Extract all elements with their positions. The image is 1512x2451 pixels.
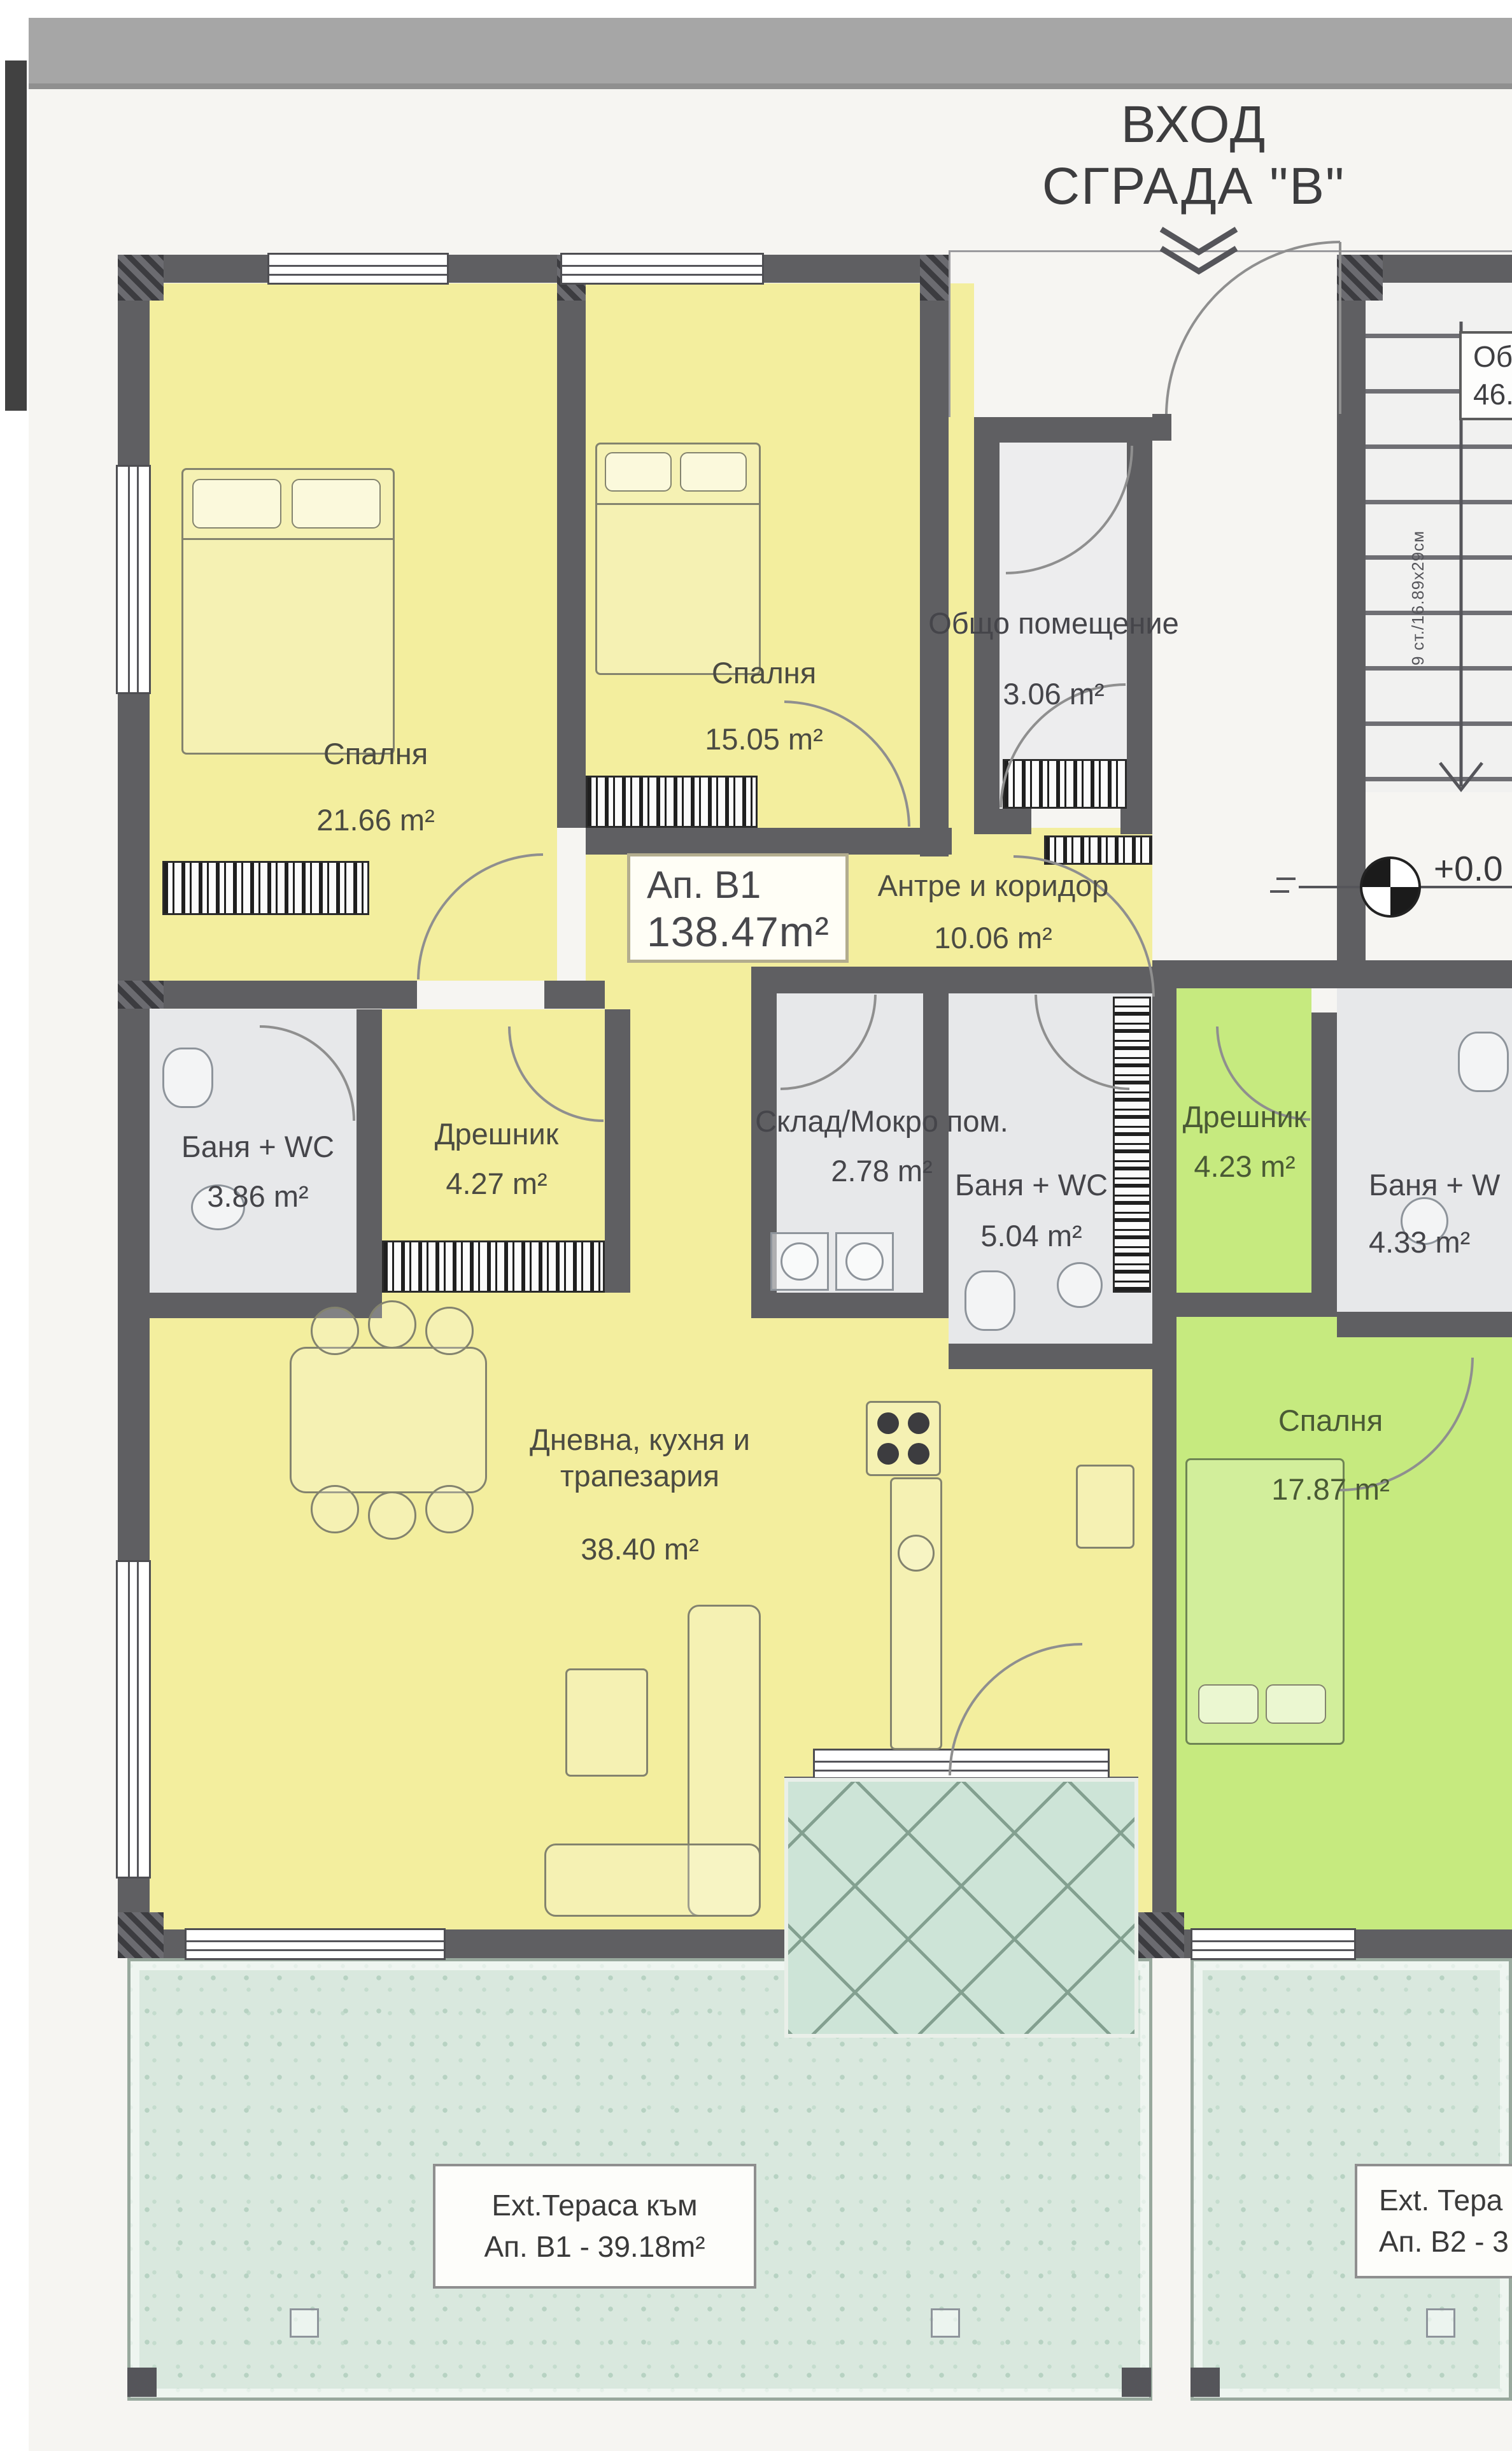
room-label-closet2: Дрешник 4.23 m² bbox=[1140, 1098, 1350, 1185]
room-label-bath-b2: Баня + W 4.33 m² bbox=[1369, 1167, 1512, 1261]
room-label-common: Общо помещение 3.06 m² bbox=[891, 605, 1216, 713]
room-label-bedroom2: Спалня 15.05 m² bbox=[630, 655, 898, 758]
room-label-bath1: Баня + WC 3.86 m² bbox=[146, 1128, 369, 1215]
stairs-note: 9 ст./16.89х29см bbox=[1408, 530, 1428, 665]
entrance-title-line1: ВХОД bbox=[984, 94, 1404, 156]
apartment-label-box: Ап. В1 138.47m² bbox=[627, 853, 849, 963]
terrace-label-b1: Ext.Тераса към Ап. В1 - 39.18m² bbox=[433, 2164, 756, 2289]
level-benchmark-icon bbox=[1360, 856, 1421, 918]
terrace-label-b2: Ext. Тера Ап. В2 - 3 bbox=[1355, 2164, 1512, 2278]
room-label-bedroom1: Спалня 21.66 m² bbox=[210, 735, 541, 839]
common-parts-box: Общ 46.3 bbox=[1459, 331, 1512, 420]
floorplan-canvas: ВХОД СГРАДА "В" bbox=[0, 0, 1512, 2451]
level-mark: +0.0 bbox=[1434, 848, 1503, 889]
room-label-bath2: Баня + WC 5.04 m² bbox=[917, 1167, 1146, 1254]
room-label-bedroom-b2: Спалня 17.87 m² bbox=[1203, 1402, 1458, 1508]
room-label-closet1: Дрешник 4.27 m² bbox=[382, 1116, 611, 1202]
room-label-living: Дневна, кухня и трапезария 38.40 m² bbox=[471, 1421, 809, 1567]
entrance-direction-icon bbox=[1157, 224, 1240, 279]
room-label-hall: Антре и коридор 10.06 m² bbox=[847, 867, 1140, 956]
entrance-title-line2: СГРАДА "В" bbox=[984, 156, 1404, 218]
entrance-title: ВХОД СГРАДА "В" bbox=[984, 94, 1404, 218]
door-arcs-overlay bbox=[0, 0, 1512, 2451]
